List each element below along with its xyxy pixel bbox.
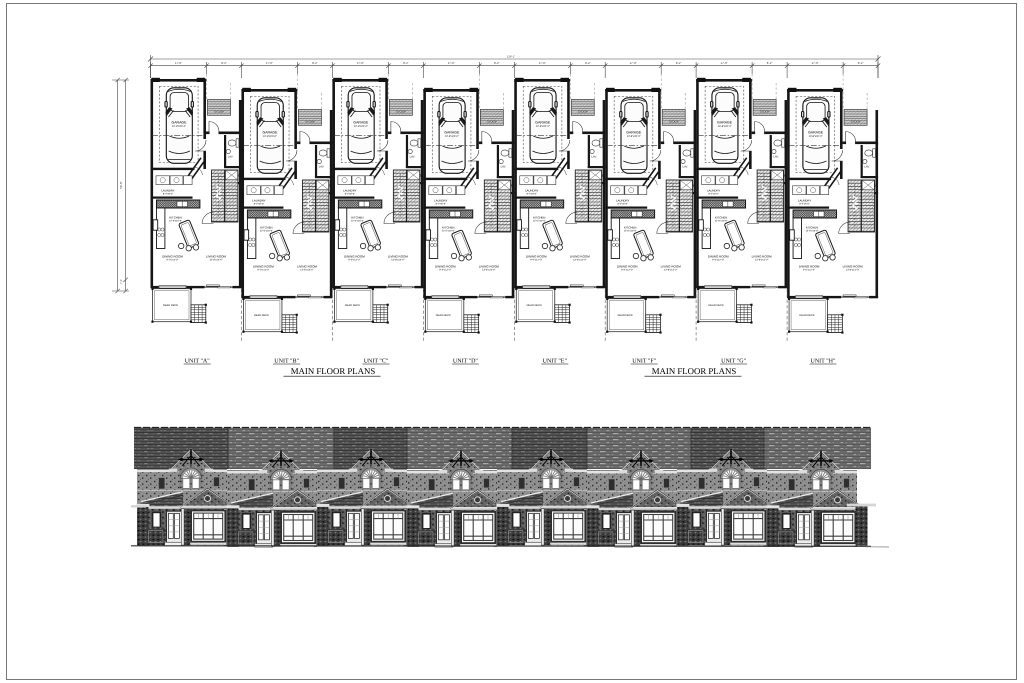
svg-text:UNIT "B": UNIT "B"	[274, 359, 299, 365]
svg-text:17'-0": 17'-0"	[812, 61, 819, 65]
svg-text:8'-2": 8'-2"	[403, 61, 409, 65]
svg-text:MAIN FLOOR PLANS: MAIN FLOOR PLANS	[652, 366, 737, 376]
svg-text:17'-0": 17'-0"	[630, 61, 637, 65]
svg-text:MAIN FLOOR PLANS: MAIN FLOOR PLANS	[291, 366, 376, 376]
svg-text:8'-2": 8'-2"	[585, 61, 591, 65]
svg-text:8'-2": 8'-2"	[767, 61, 773, 65]
svg-text:17'-0": 17'-0"	[448, 61, 455, 65]
svg-text:8'-2": 8'-2"	[494, 61, 500, 65]
svg-text:UNIT "H": UNIT "H"	[811, 359, 837, 365]
svg-text:17'-0": 17'-0"	[175, 61, 182, 65]
svg-text:17'-0": 17'-0"	[266, 61, 273, 65]
svg-text:59'-8": 59'-8"	[119, 181, 123, 188]
svg-text:17'-0": 17'-0"	[721, 61, 728, 65]
svg-text:UNIT "A": UNIT "A"	[185, 359, 211, 365]
svg-text:UNIT "G": UNIT "G"	[721, 359, 747, 365]
svg-text:17'-0": 17'-0"	[357, 61, 364, 65]
svg-text:8'-2": 8'-2"	[312, 61, 318, 65]
svg-text:136'-1": 136'-1"	[507, 55, 515, 58]
svg-text:8'-2": 8'-2"	[221, 61, 227, 65]
svg-text:UNIT "C": UNIT "C"	[364, 359, 389, 365]
svg-text:UNIT "F": UNIT "F"	[632, 359, 657, 365]
svg-text:UNIT "D": UNIT "D"	[453, 359, 479, 365]
svg-text:17'-0": 17'-0"	[539, 61, 546, 65]
svg-text:UNIT "E": UNIT "E"	[543, 359, 568, 365]
svg-text:8'-2": 8'-2"	[676, 61, 682, 65]
svg-text:7'-0": 7'-0"	[120, 279, 123, 284]
svg-text:8'-2": 8'-2"	[858, 61, 864, 65]
